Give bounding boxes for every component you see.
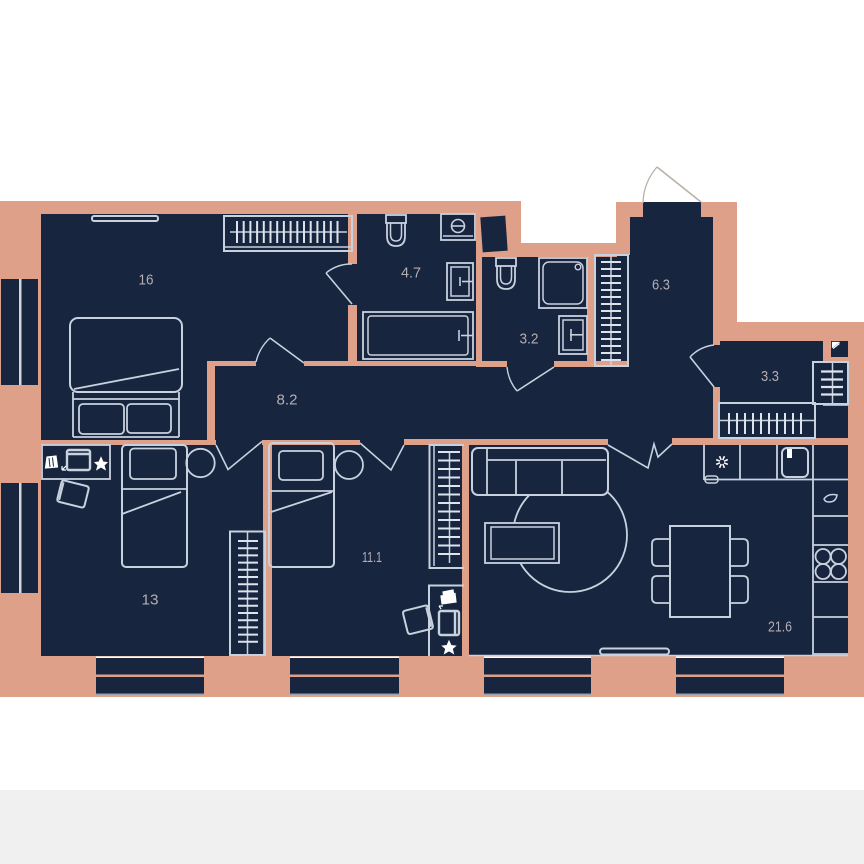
svg-text:4.7: 4.7 xyxy=(401,266,421,282)
svg-text:11.1: 11.1 xyxy=(362,550,382,566)
svg-text:16: 16 xyxy=(139,273,154,289)
svg-text:3.3: 3.3 xyxy=(761,369,779,385)
svg-text:21.6: 21.6 xyxy=(768,620,792,636)
svg-text:6.3: 6.3 xyxy=(652,278,670,294)
svg-text:13: 13 xyxy=(142,593,159,609)
svg-text:3.2: 3.2 xyxy=(520,332,539,348)
svg-text:8.2: 8.2 xyxy=(277,393,298,409)
